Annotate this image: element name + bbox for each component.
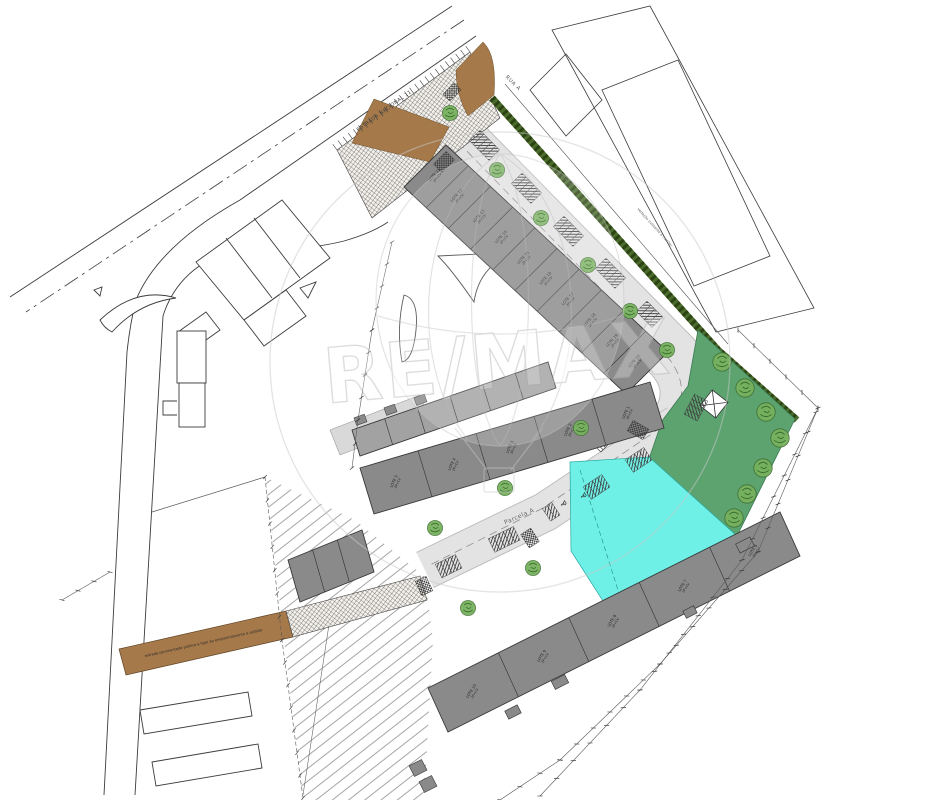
dimension-tick (91, 581, 96, 582)
tree-icon (460, 600, 475, 615)
dimension-tick (537, 773, 542, 774)
comb-tick (333, 144, 337, 150)
tree-icon (725, 509, 743, 527)
dimension-tick (667, 653, 672, 654)
existing-building (140, 692, 252, 734)
dimension-tick (696, 615, 701, 616)
dimension-tick (517, 786, 522, 787)
tree-icon (497, 480, 512, 495)
tree-icon (442, 105, 457, 120)
site-plan-page: LOTE 112P+CVLOTE 122P+CVLOTE 132P+CVLOTE… (0, 0, 930, 800)
traffic-island (300, 282, 316, 298)
comb-tick (338, 141, 342, 147)
rua-a-label: RUA A (504, 74, 522, 92)
dimension-chain (59, 571, 112, 600)
comb-tick (415, 84, 419, 90)
hedge-note: vedação existente a manter (636, 207, 673, 248)
dimension-tick (59, 599, 64, 600)
boundary-line (152, 477, 265, 512)
dimension-line (62, 572, 110, 600)
tree-icon (738, 485, 756, 503)
site-plan-drawing: LOTE 112P+CVLOTE 122P+CVLOTE 132P+CVLOTE… (0, 0, 930, 800)
comb-tick (420, 80, 424, 86)
traffic-island (100, 295, 176, 332)
existing-building (177, 331, 206, 383)
comb-tick (445, 61, 449, 67)
embankment-area (265, 477, 433, 800)
tree-icon (713, 353, 731, 371)
comb-tick (343, 137, 347, 143)
comb-tick (456, 54, 460, 60)
dimension-tick (107, 571, 112, 572)
comb-tick (425, 77, 429, 83)
comb-tick (461, 50, 465, 56)
comb-tick (435, 69, 439, 75)
tree-icon (573, 420, 588, 435)
tree-icon (754, 459, 772, 477)
comb-tick (348, 133, 352, 139)
tree-icon (736, 379, 754, 397)
tree-icon (525, 560, 540, 575)
tree-icon (757, 403, 775, 421)
dimension-tick (557, 759, 562, 760)
comb-tick (450, 58, 454, 64)
existing-building (152, 744, 262, 786)
comb-tick (466, 46, 470, 52)
building-step (163, 401, 177, 415)
comb-tick (440, 65, 444, 71)
traffic-island (94, 287, 102, 296)
existing-building (196, 200, 330, 320)
existing-building (179, 383, 205, 427)
tree-icon (771, 429, 789, 447)
annex-box (505, 705, 522, 719)
dimension-tick (75, 590, 80, 591)
neighbour-building (530, 54, 602, 136)
comb-tick (430, 73, 434, 79)
tree-icon (427, 520, 442, 535)
